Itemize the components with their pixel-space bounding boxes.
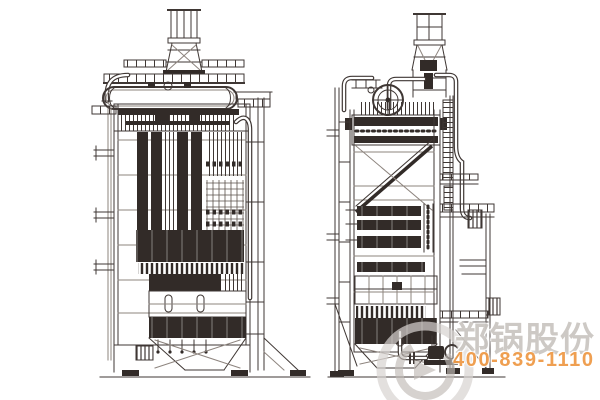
right-stack-truss-tower: [412, 45, 447, 97]
right-tube-bank-rows: [346, 204, 433, 272]
left-side-brackets: [92, 106, 116, 274]
left-lower-tube-blocks: [136, 230, 246, 354]
left-feet-and-ground: [100, 370, 310, 377]
left-boiler-front-elevation: [92, 10, 310, 377]
right-diagonal-braces: [356, 140, 432, 212]
left-stack: [168, 10, 200, 43]
left-header-and-riser-tubes: [118, 109, 239, 131]
left-stack-truss-tower: [163, 43, 205, 74]
boiler-drawing-image: 郑锅股份 400-839-1110: [0, 0, 600, 400]
right-mid-frame-section: [355, 276, 437, 318]
watermark-phone-number: 400-839-1110: [453, 349, 595, 372]
steam-drum: [103, 82, 237, 109]
left-furnace-tube-banks: [137, 132, 202, 230]
left-superheater-economizer-section: [206, 132, 244, 230]
drum-end-circle: [352, 80, 436, 115]
left-ash-hopper: [136, 338, 246, 370]
right-stack: [414, 14, 445, 45]
